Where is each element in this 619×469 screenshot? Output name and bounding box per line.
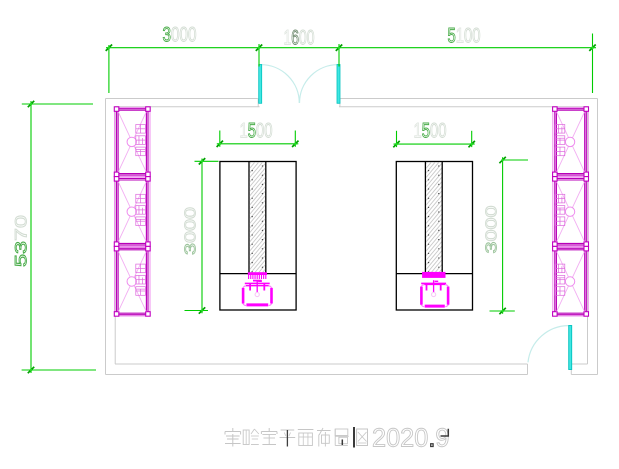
svg-text:5370: 5370 <box>12 215 31 267</box>
svg-text:1600: 1600 <box>284 27 315 50</box>
svg-text:3000: 3000 <box>484 205 501 253</box>
svg-text:2020.9: 2020.9 <box>372 423 450 453</box>
svg-text:1500: 1500 <box>414 120 447 143</box>
svg-text:1500: 1500 <box>240 120 273 143</box>
svg-text:3000: 3000 <box>163 24 197 47</box>
svg-text:5100: 5100 <box>448 25 481 48</box>
svg-text:3000: 3000 <box>183 207 200 255</box>
